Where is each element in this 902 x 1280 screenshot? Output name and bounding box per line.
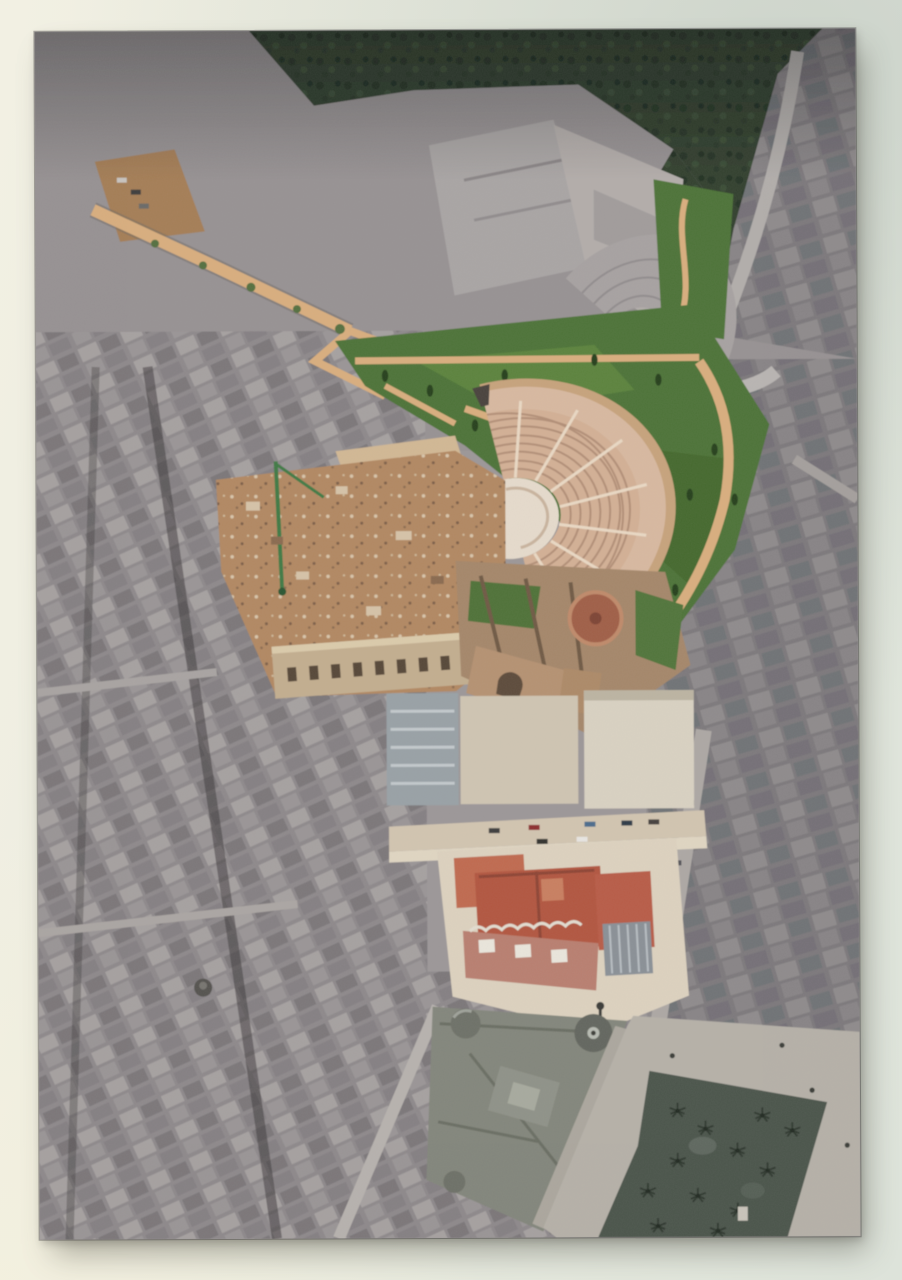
aerial-photo-print [34,28,860,1240]
gallery-wall [0,0,902,1280]
photo-grain [34,28,860,1240]
aerial-photo-art [34,28,860,1240]
